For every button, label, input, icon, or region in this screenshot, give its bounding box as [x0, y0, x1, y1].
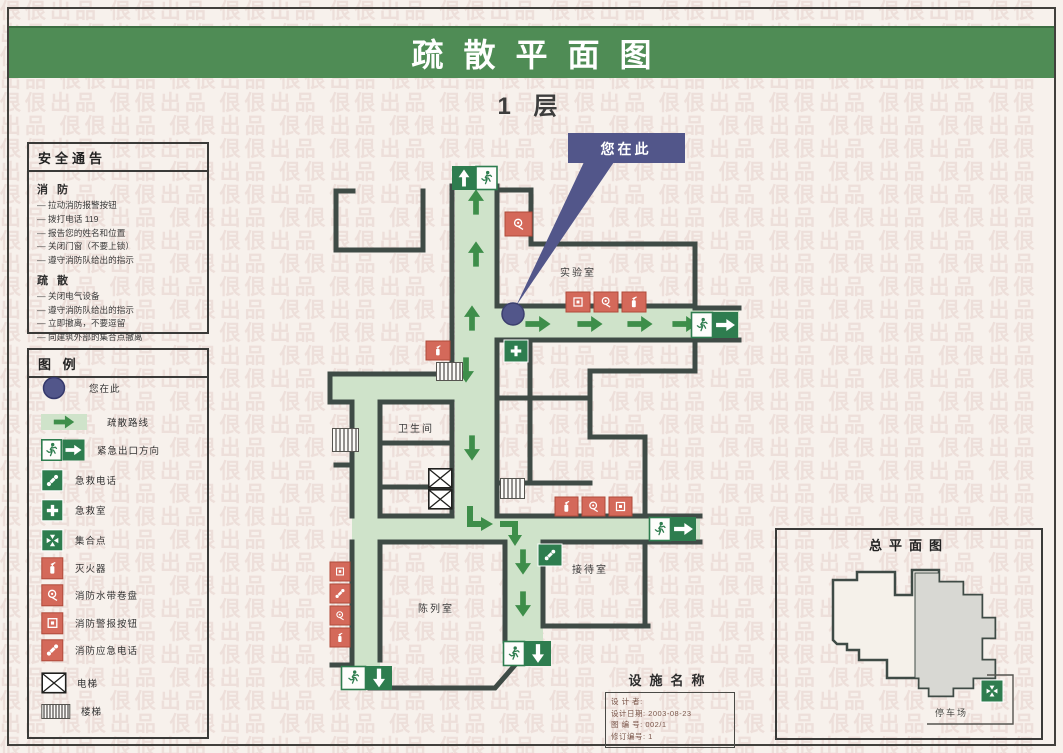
legend-item-label: 集合点: [75, 533, 107, 547]
floor-plan-map: 实验室 卫生间 接待室 陈列室 您在此: [300, 128, 760, 713]
legend-title: 图 例: [29, 350, 207, 378]
legend-item-fire-emergency-phone: 消防应急电话: [41, 637, 138, 663]
first-aid-room-icon: [41, 499, 75, 522]
info-line: 设 计 者:: [611, 696, 729, 708]
legend-item-label: 楼梯: [81, 704, 102, 718]
legend-item-evacuation-route: 疏散路线: [41, 409, 149, 435]
assembly-point-icon: [41, 529, 75, 552]
info-line: 图 编 号: 002/1: [611, 719, 729, 731]
notice-item: 拉动消防报警按钮: [37, 199, 199, 213]
room-label-reception: 接待室: [572, 563, 608, 576]
notice-item: 遵守消防队给出的指示: [37, 304, 199, 318]
legend-item-fire-extinguisher: 灭火器: [41, 555, 107, 581]
fire-alarm-button-icon: [41, 612, 75, 635]
first-aid-room-icon: [504, 340, 528, 362]
evacuation-plan-poster: 佷佷出品 佷佷出品 佷佷出品 佷佷出品 佷佷出品 佷佷出品 佷佷出品 佷佷出品 …: [0, 0, 1063, 753]
fire-equipment-row-upper: [566, 292, 646, 312]
legend-item-you-are-here: 您在此: [41, 375, 121, 401]
fire-equipment-row-lower: [555, 497, 632, 516]
info-line: 修订编号: 1: [611, 731, 729, 743]
room-label-lab: 实验室: [560, 266, 596, 279]
exit-sign-bottom-middle: [504, 641, 552, 666]
legend-item-stairs: 楼梯: [41, 698, 102, 724]
notice-item: 拨打电话 119: [37, 213, 199, 227]
fire-emergency-phone-icon: [41, 639, 75, 662]
facility-name-title: 设施名称: [598, 670, 743, 689]
legend-item-fire-hose-reel: 消防水带卷盘: [41, 582, 138, 608]
legend-item-assembly-point: 集合点: [41, 527, 107, 553]
notice-item: 关闭电气设备: [37, 290, 199, 304]
legend-panel: 图 例 您在此 疏散路线 紧急出口方向: [27, 348, 209, 739]
legend-item-fire-alarm-button: 消防警报按钮: [41, 610, 138, 636]
elevator-icon: [41, 672, 77, 694]
site-plan-panel: 总平面图 停车场: [775, 528, 1043, 740]
legend-item-label: 您在此: [89, 381, 121, 395]
drawing-info-box: 设 计 者: 设计日期: 2003-08-23 图 编 号: 002/1 修订编…: [605, 692, 735, 748]
legend-item-first-aid-phone: 急救电话: [41, 467, 117, 493]
legend-item-label: 消防警报按钮: [75, 616, 138, 630]
legend-item-label: 紧急出口方向: [97, 443, 160, 457]
fire-extinguisher-icon: [426, 341, 450, 360]
you-are-here-icon: [41, 375, 89, 401]
stairs-icon: [501, 479, 525, 499]
building-shaded-half: [915, 573, 995, 696]
legend-item-label: 消防水带卷盘: [75, 588, 138, 602]
stairs-icon: [333, 429, 359, 452]
legend-item-exit-direction: 紧急出口方向: [41, 437, 160, 463]
fire-extinguisher-icon: [41, 557, 75, 580]
legend-item-first-aid-room: 急救室: [41, 497, 107, 523]
exit-sign-bottom-left: [342, 666, 393, 690]
notice-item: 报告您的姓名和位置: [37, 227, 199, 241]
page-title: 疏散平面图: [391, 30, 671, 76]
room-label-restroom: 卫生间: [398, 422, 434, 435]
parking-label: 停车场: [935, 707, 968, 718]
safety-notice-title: 安全通告: [29, 144, 207, 172]
evacuation-route-icon: [41, 412, 107, 432]
exit-sign-top: [452, 166, 497, 190]
site-plan-drawing: 停车场: [777, 552, 1037, 734]
you-are-here-dot: [502, 303, 524, 325]
notice-section-fire-heading: 消 防: [37, 181, 199, 197]
fire-hose-reel-icon: [41, 584, 75, 607]
notice-item: 立即撤离，不要逗留: [37, 317, 199, 331]
exit-sign-upper-right: [692, 312, 739, 338]
fire-hose-reel-icon: [505, 212, 532, 236]
notice-item: 关闭门窗（不要上锁）: [37, 240, 199, 254]
exit-sign-lower-right: [650, 517, 697, 541]
stairs-icon: [41, 703, 81, 720]
notice-section-evac-heading: 疏 散: [37, 272, 199, 288]
first-aid-phone-icon: [41, 469, 75, 492]
legend-item-label: 灭火器: [75, 561, 107, 575]
floor-label: 1 层: [0, 86, 1063, 121]
notice-item: 遵守消防队给出的指示: [37, 254, 199, 268]
legend-item-label: 消防应急电话: [75, 643, 138, 657]
legend-item-elevator: 电梯: [41, 670, 98, 696]
legend-item-label: 急救电话: [75, 473, 117, 487]
legend-item-label: 电梯: [77, 676, 98, 690]
you-are-here-label: 您在此: [601, 141, 652, 157]
room-label-exhibition: 陈列室: [418, 602, 454, 615]
title-band: 疏散平面图: [9, 26, 1054, 78]
legend-item-label: 疏散路线: [107, 415, 149, 429]
legend-item-label: 急救室: [75, 503, 107, 517]
assembly-point-icon: [981, 680, 1003, 702]
first-aid-phone-icon: [538, 544, 562, 566]
info-line: 设计日期: 2003-08-23: [611, 708, 729, 720]
fire-equipment-stack-left: [330, 562, 350, 647]
emergency-exit-direction-icon: [41, 439, 97, 461]
safety-notice-panel: 安全通告 消 防 拉动消防报警按钮 拨打电话 119 报告您的姓名和位置 关闭门…: [27, 142, 209, 334]
notice-item: 向建筑外部的集合点撤离: [37, 331, 199, 345]
stairs-icon: [437, 363, 463, 381]
